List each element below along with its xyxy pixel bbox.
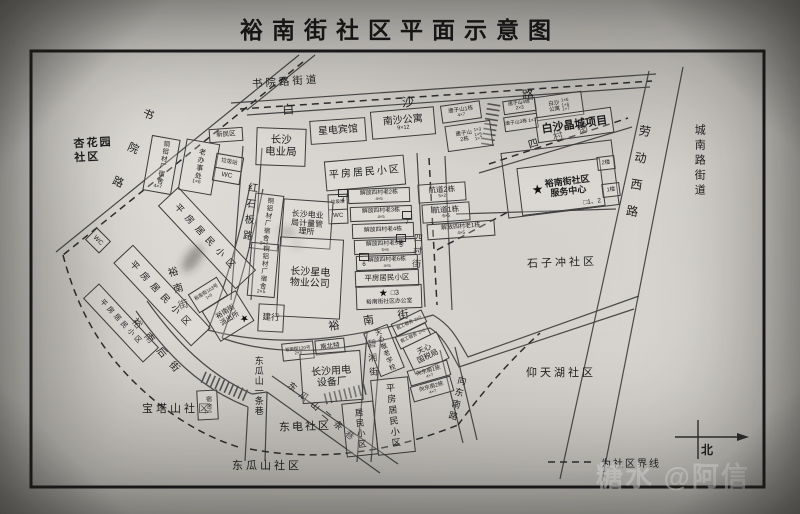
map-sign-photo: 裕南街社区平面示意图 书院路街道 杏花园 社区 城南路街道 石子冲社区 仰天湖社… [0, 0, 800, 514]
photo-vignette [0, 0, 800, 514]
